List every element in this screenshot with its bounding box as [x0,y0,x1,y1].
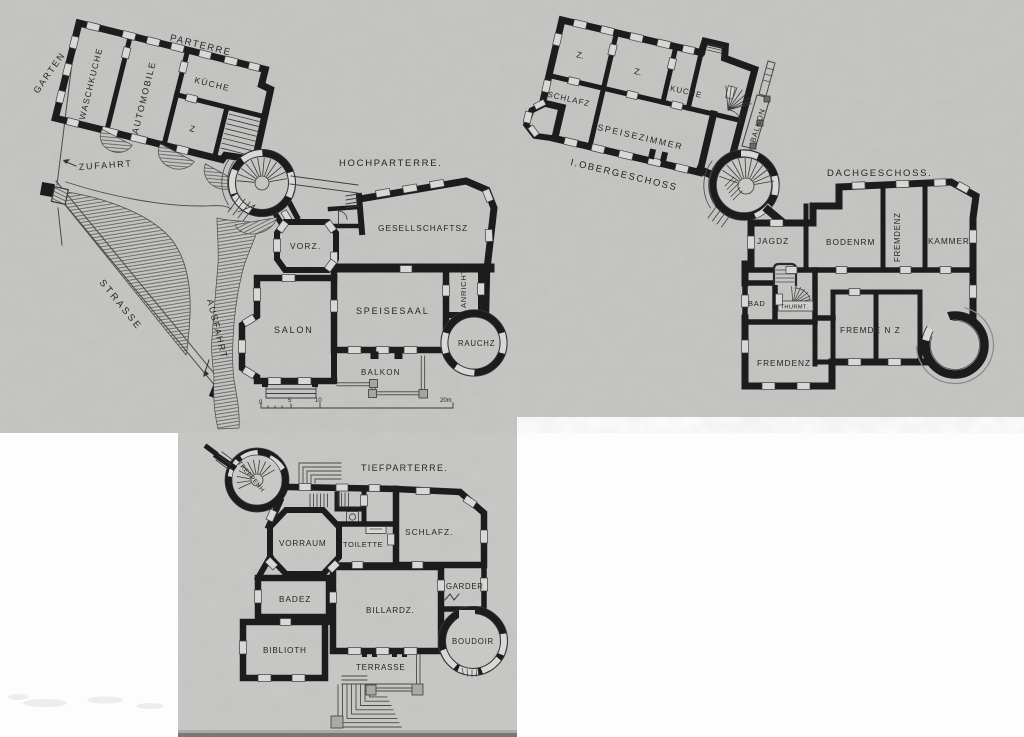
svg-text:RAUCHZ: RAUCHZ [458,339,495,348]
svg-text:10: 10 [315,398,322,404]
svg-text:20m: 20m [440,398,452,404]
svg-text:BADEZ: BADEZ [279,595,311,604]
svg-text:TIEFPARTERRE.: TIEFPARTERRE. [361,463,448,473]
svg-text:DACHGESCHOSS.: DACHGESCHOSS. [827,168,933,179]
svg-text:BAD: BAD [748,299,766,308]
svg-text:SCHLAFZ.: SCHLAFZ. [405,527,454,537]
svg-text:TOILETTE: TOILETTE [343,540,383,549]
svg-text:BIBLIOTH: BIBLIOTH [263,646,307,655]
svg-text:SPEISESAAL: SPEISESAAL [356,306,430,316]
svg-text:GARDER: GARDER [446,582,484,591]
svg-text:ANRICHTE: ANRICHTE [459,263,468,308]
svg-text:VORRAUM: VORRAUM [279,539,326,548]
svg-text:TERRASSE: TERRASSE [356,663,406,672]
svg-text:VORZ.: VORZ. [290,241,321,251]
svg-text:SALON: SALON [274,325,314,335]
svg-text:HOCHPARTERRE.: HOCHPARTERRE. [339,158,443,169]
svg-text:KAMMER: KAMMER [928,236,970,246]
svg-text:THURMT.: THURMT. [781,305,809,311]
svg-text:FREMDE N Z: FREMDE N Z [840,325,901,335]
svg-text:BILLARDZ.: BILLARDZ. [366,606,415,615]
svg-text:FREMDENZ: FREMDENZ [757,358,811,368]
svg-text:BOUDOIR: BOUDOIR [452,637,494,646]
svg-text:GESELLSCHAFTSZ: GESELLSCHAFTSZ [378,223,468,233]
svg-text:JAGDZ: JAGDZ [757,236,789,246]
svg-text:FREMDENZ: FREMDENZ [893,212,902,262]
svg-text:BALKON: BALKON [361,368,401,377]
svg-text:BODENRM: BODENRM [826,237,875,247]
